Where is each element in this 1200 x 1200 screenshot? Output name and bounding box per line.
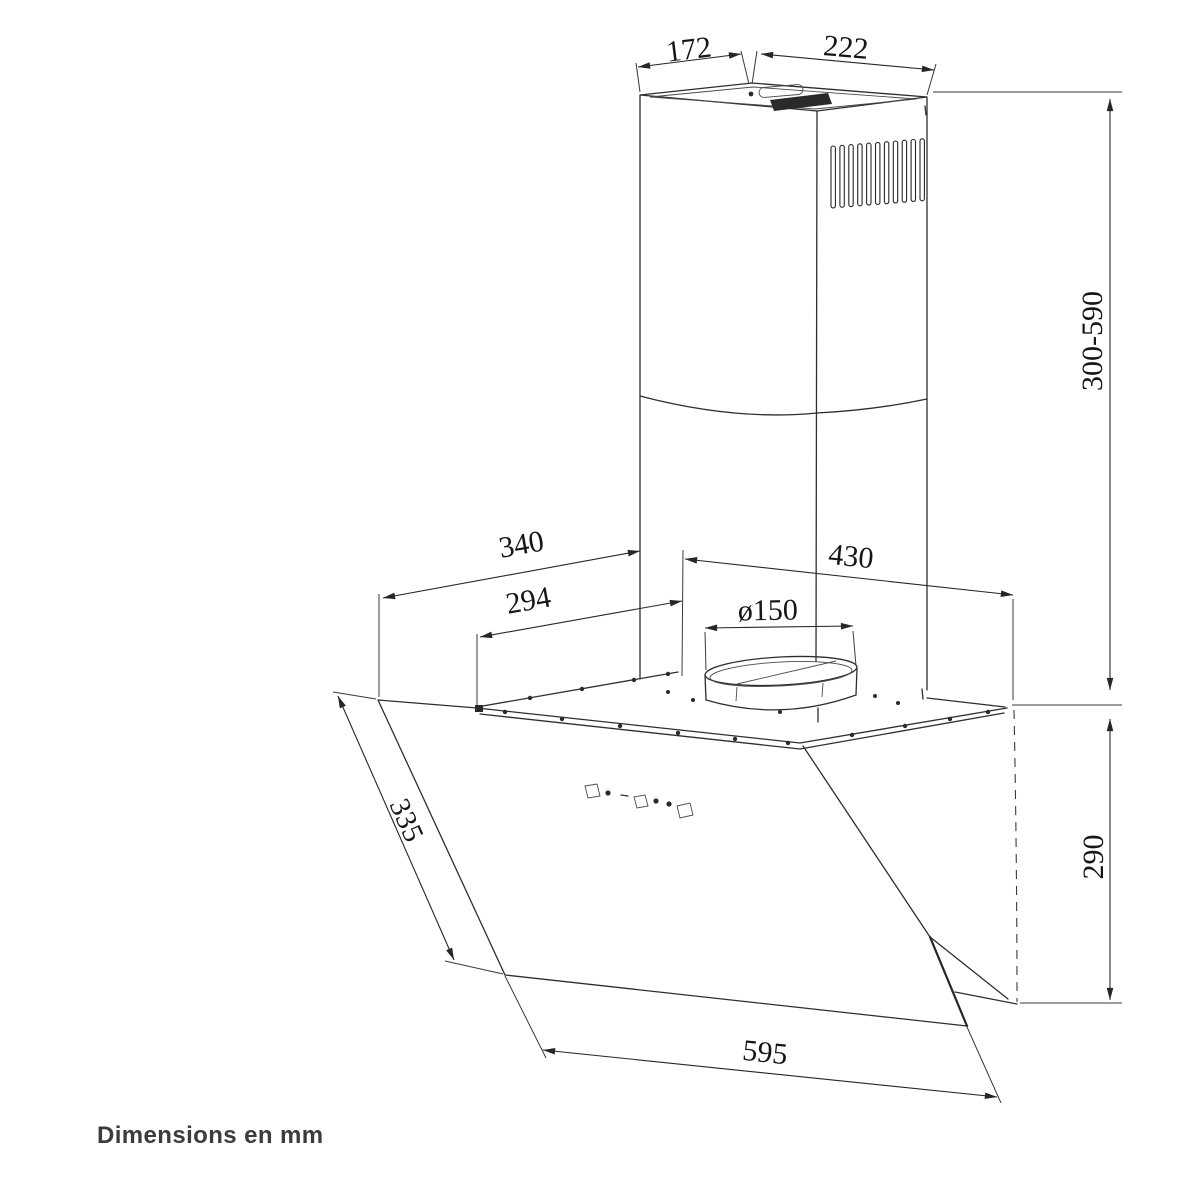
control-button <box>634 795 648 808</box>
control-led <box>666 801 671 806</box>
cooker-hood-dimension-diagram: 172 222 300-590 290 340 294 430 ø150 <box>0 0 1200 1200</box>
chimney-foot-mark <box>922 689 923 699</box>
body-hidden-back-edge <box>1014 710 1017 1002</box>
duct-side-left <box>705 675 706 700</box>
chimney-telescopic-joint <box>640 396 927 415</box>
dim-595-label: 595 <box>741 1034 789 1072</box>
control-panel <box>585 784 693 818</box>
dimension-lines: 172 222 300-590 290 340 294 430 ø150 <box>333 29 1122 1103</box>
duct-top-rim <box>704 653 857 689</box>
glass-fold-edge <box>803 746 930 937</box>
dim-222-label: 222 <box>822 29 870 66</box>
hood-rim-inner <box>480 713 1004 749</box>
dim-150-label: ø150 <box>738 593 799 627</box>
control-led <box>653 798 658 803</box>
dim-300-590-label: 300-590 <box>1076 291 1109 391</box>
duct-bottom <box>706 695 856 710</box>
dim-335-label: 335 <box>383 794 430 847</box>
duct-collar <box>704 653 857 710</box>
control-led <box>605 790 610 795</box>
hood-top-back-edge <box>927 698 1005 707</box>
footer-note: Dimensions en mm <box>97 1122 323 1149</box>
chimney-vent-grille <box>831 139 924 208</box>
glass-bottom-edge <box>505 975 967 1026</box>
technical-drawing-page: 172 222 300-590 290 340 294 430 ø150 <box>0 0 1200 1200</box>
hood-top-left-edge <box>477 672 678 707</box>
glass-right-edge <box>930 937 967 1026</box>
control-dash <box>621 795 628 796</box>
dim-340-label: 340 <box>496 524 546 564</box>
chimney-right-mark <box>925 106 926 115</box>
duct-side-right <box>856 668 857 695</box>
glass-panel <box>378 700 1017 1026</box>
screw-dot <box>749 92 754 97</box>
control-button <box>677 803 693 818</box>
glass-top-edge <box>378 700 477 708</box>
control-button <box>585 784 600 798</box>
dim-290-label: 290 <box>1077 835 1110 880</box>
dim-430-label: 430 <box>827 538 875 576</box>
hood-rim-outer <box>477 708 1007 743</box>
dim-294-label: 294 <box>503 580 553 620</box>
duct-seam <box>736 687 737 701</box>
dim-172-label: 172 <box>664 30 713 68</box>
duct-seam <box>822 683 823 697</box>
chimney-front-edge <box>816 111 817 661</box>
